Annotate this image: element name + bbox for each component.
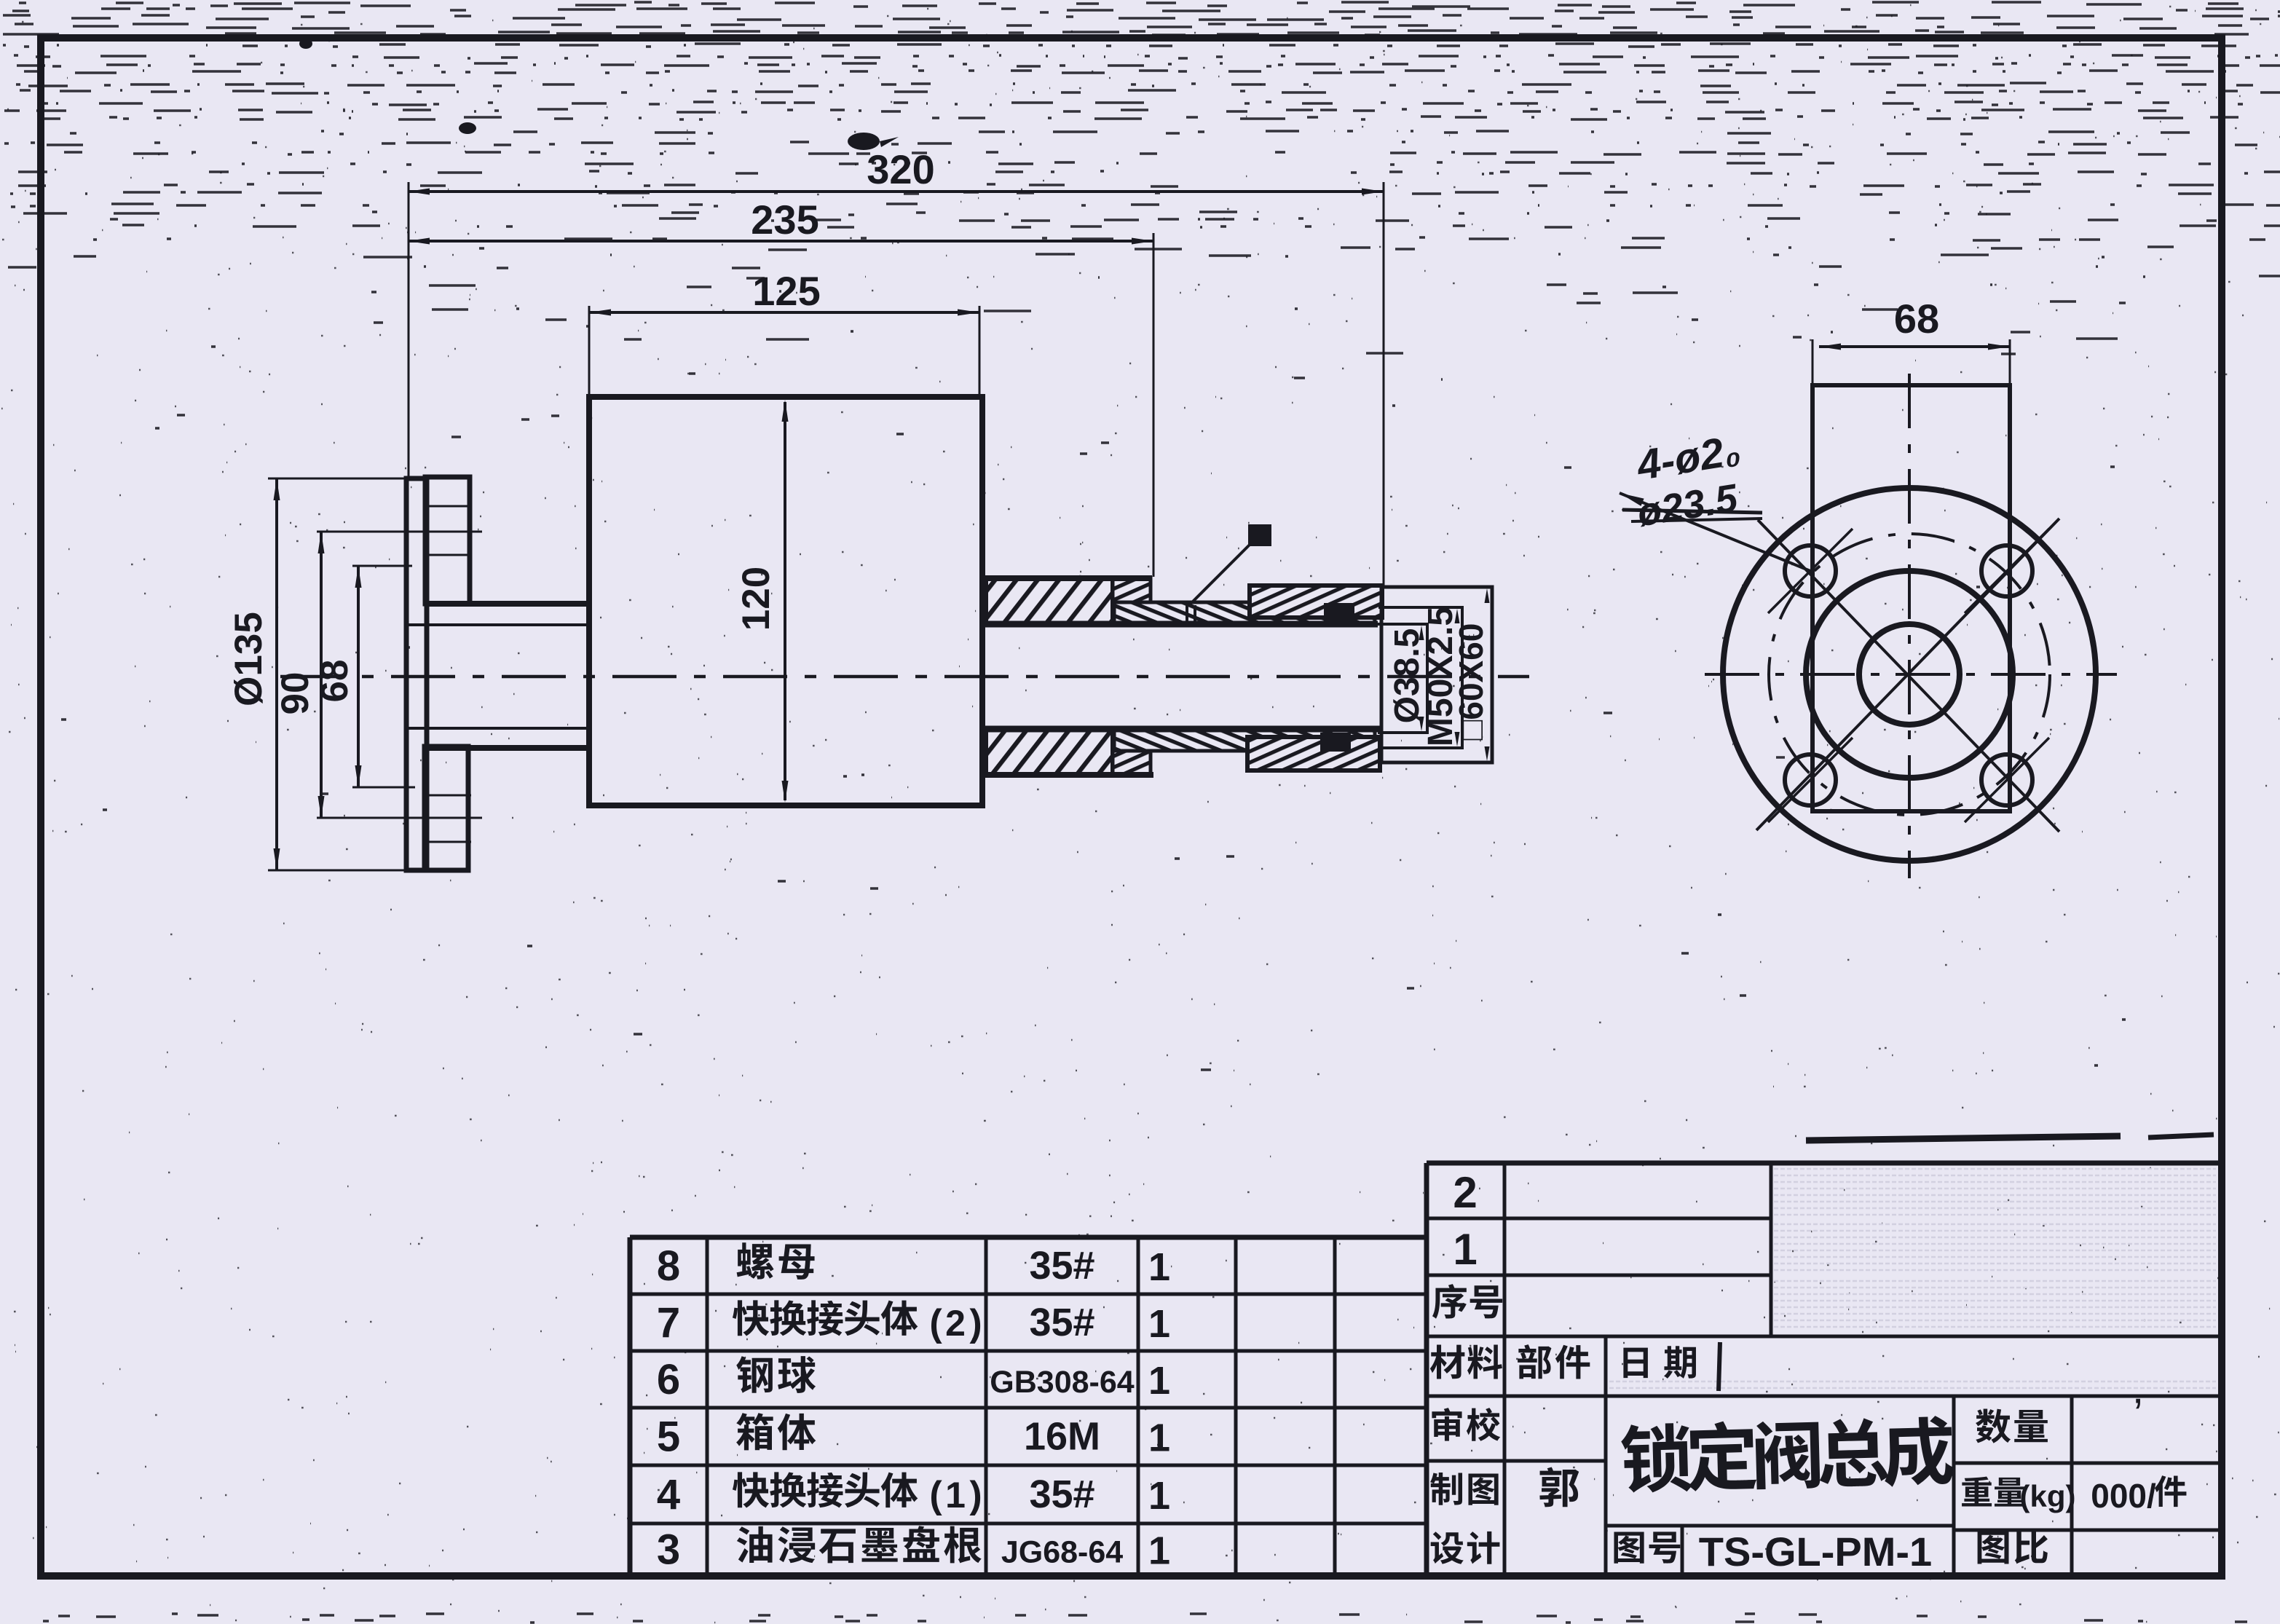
svg-text:35#: 35# [1029, 1473, 1094, 1516]
svg-text:1: 1 [1148, 1474, 1170, 1518]
svg-text:16M: 16M [1024, 1415, 1100, 1459]
svg-text:3: 3 [657, 1526, 680, 1574]
svg-text:000/: 000/ [2091, 1477, 2156, 1515]
svg-text:1: 1 [1148, 1529, 1170, 1573]
svg-text:): ) [969, 1474, 982, 1516]
svg-text:(kg): (kg) [2020, 1479, 2076, 1513]
svg-text:35#: 35# [1029, 1244, 1094, 1288]
svg-text:4: 4 [657, 1471, 680, 1518]
svg-text:35#: 35# [1029, 1301, 1094, 1344]
svg-text:1: 1 [1148, 1302, 1170, 1346]
svg-text:JG68-64: JG68-64 [1001, 1535, 1123, 1570]
svg-text:1: 1 [1453, 1225, 1477, 1274]
svg-text:TS-GL-PM-1: TS-GL-PM-1 [1699, 1529, 1932, 1574]
svg-text:5: 5 [657, 1414, 680, 1461]
svg-text:90: 90 [274, 672, 317, 715]
svg-text:6: 6 [657, 1356, 680, 1403]
svg-text:’: ’ [2133, 1390, 2142, 1438]
svg-text:68: 68 [1894, 296, 1939, 342]
svg-text:(: ( [929, 1474, 942, 1516]
svg-text:1: 1 [945, 1475, 966, 1515]
svg-text:GB308-64: GB308-64 [990, 1365, 1134, 1400]
svg-text:120: 120 [735, 567, 778, 631]
svg-text:2: 2 [945, 1303, 966, 1344]
svg-text:125: 125 [752, 268, 820, 314]
svg-text:): ) [969, 1302, 982, 1344]
svg-text:8: 8 [657, 1242, 680, 1290]
svg-text:Ø135: Ø135 [227, 612, 270, 706]
svg-text:68: 68 [313, 660, 356, 703]
svg-text:235: 235 [751, 197, 818, 243]
svg-text:□60X60: □60X60 [1452, 623, 1490, 741]
svg-text:7: 7 [657, 1299, 680, 1347]
svg-text:320: 320 [867, 146, 934, 192]
svg-text:1: 1 [1148, 1416, 1170, 1460]
svg-text:1: 1 [1148, 1245, 1170, 1289]
svg-text:(: ( [929, 1302, 942, 1344]
svg-text:2: 2 [1453, 1168, 1477, 1217]
svg-text:1: 1 [1148, 1359, 1170, 1403]
